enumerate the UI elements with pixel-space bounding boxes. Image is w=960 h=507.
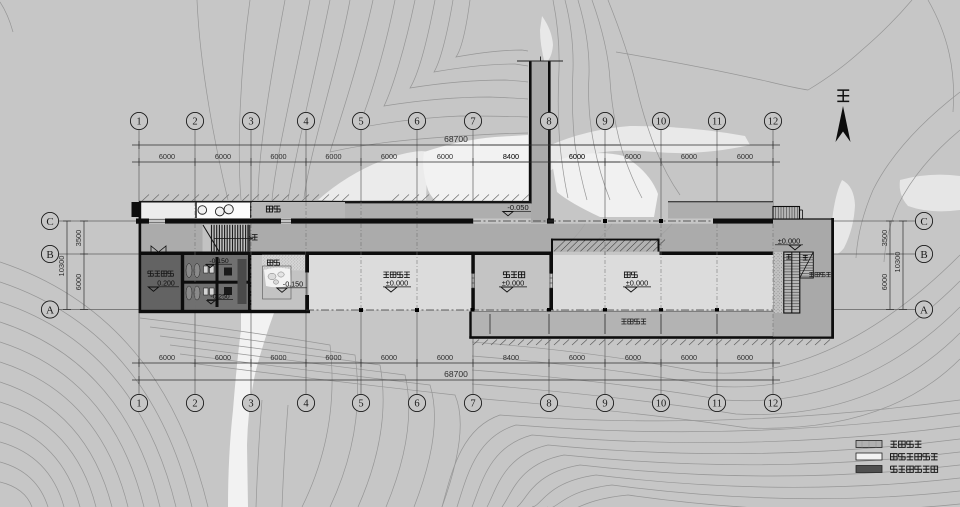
svg-text:3: 3 bbox=[248, 399, 253, 410]
svg-text:-0.050: -0.050 bbox=[507, 203, 528, 212]
svg-text:6000: 6000 bbox=[681, 353, 697, 362]
svg-text:6000: 6000 bbox=[625, 152, 641, 161]
svg-text:5: 5 bbox=[358, 117, 363, 128]
svg-text:6000: 6000 bbox=[159, 152, 175, 161]
svg-text:A: A bbox=[920, 304, 928, 316]
svg-text:6000: 6000 bbox=[681, 152, 697, 161]
svg-text:3500: 3500 bbox=[74, 230, 83, 247]
svg-text:3: 3 bbox=[248, 117, 253, 128]
svg-text:C: C bbox=[46, 216, 53, 228]
svg-text:6000: 6000 bbox=[215, 152, 231, 161]
svg-text:8: 8 bbox=[546, 399, 551, 410]
svg-text:10: 10 bbox=[656, 117, 667, 128]
svg-text:10: 10 bbox=[656, 399, 667, 410]
svg-text:B: B bbox=[46, 249, 53, 261]
svg-text:8: 8 bbox=[546, 117, 551, 128]
svg-text:±0.000: ±0.000 bbox=[778, 237, 801, 246]
svg-text:11: 11 bbox=[712, 399, 722, 410]
svg-text:6000: 6000 bbox=[437, 353, 453, 362]
svg-text:1: 1 bbox=[136, 399, 141, 410]
svg-text:-0.150: -0.150 bbox=[283, 280, 303, 289]
svg-text:6000: 6000 bbox=[325, 353, 341, 362]
svg-text:12: 12 bbox=[768, 399, 779, 410]
svg-text:12: 12 bbox=[768, 117, 779, 128]
svg-text:6000: 6000 bbox=[325, 152, 341, 161]
svg-text:6000: 6000 bbox=[270, 152, 286, 161]
svg-text:7: 7 bbox=[470, 399, 475, 410]
svg-text:6000: 6000 bbox=[569, 152, 585, 161]
svg-text:5: 5 bbox=[358, 399, 363, 410]
svg-text:6000: 6000 bbox=[437, 152, 453, 161]
svg-text:10300: 10300 bbox=[893, 252, 902, 273]
svg-text:6000: 6000 bbox=[159, 353, 175, 362]
svg-text:2: 2 bbox=[192, 117, 197, 128]
svg-text:6000: 6000 bbox=[270, 353, 286, 362]
svg-text:3500: 3500 bbox=[880, 230, 889, 247]
svg-text:7: 7 bbox=[470, 117, 475, 128]
svg-text:6000: 6000 bbox=[381, 152, 397, 161]
svg-text:9: 9 bbox=[602, 399, 607, 410]
svg-text:9: 9 bbox=[602, 117, 607, 128]
svg-text:6: 6 bbox=[414, 399, 419, 410]
svg-text:6000: 6000 bbox=[74, 274, 83, 291]
svg-text:10300: 10300 bbox=[57, 256, 66, 277]
svg-text:B: B bbox=[920, 249, 927, 261]
svg-text:A: A bbox=[46, 304, 54, 316]
svg-text:4: 4 bbox=[303, 399, 309, 410]
svg-text:6000: 6000 bbox=[737, 152, 753, 161]
svg-text:2: 2 bbox=[192, 399, 197, 410]
svg-text:±0.000: ±0.000 bbox=[502, 279, 525, 288]
svg-text:68700: 68700 bbox=[444, 134, 468, 144]
svg-text:6000: 6000 bbox=[625, 353, 641, 362]
svg-text:68700: 68700 bbox=[444, 369, 468, 379]
svg-text:1: 1 bbox=[136, 117, 141, 128]
svg-text:4: 4 bbox=[303, 117, 309, 128]
svg-text:±0.000: ±0.000 bbox=[626, 279, 649, 288]
svg-text:±0.000: ±0.000 bbox=[386, 279, 409, 288]
svg-text:11: 11 bbox=[712, 117, 722, 128]
svg-text:6000: 6000 bbox=[215, 353, 231, 362]
svg-text:8400: 8400 bbox=[503, 152, 519, 161]
svg-text:C: C bbox=[920, 216, 927, 228]
svg-text:6: 6 bbox=[414, 117, 419, 128]
svg-text:8400: 8400 bbox=[503, 353, 519, 362]
svg-text:6000: 6000 bbox=[737, 353, 753, 362]
svg-text:6000: 6000 bbox=[381, 353, 397, 362]
svg-text:6000: 6000 bbox=[880, 274, 889, 291]
svg-text:6000: 6000 bbox=[569, 353, 585, 362]
